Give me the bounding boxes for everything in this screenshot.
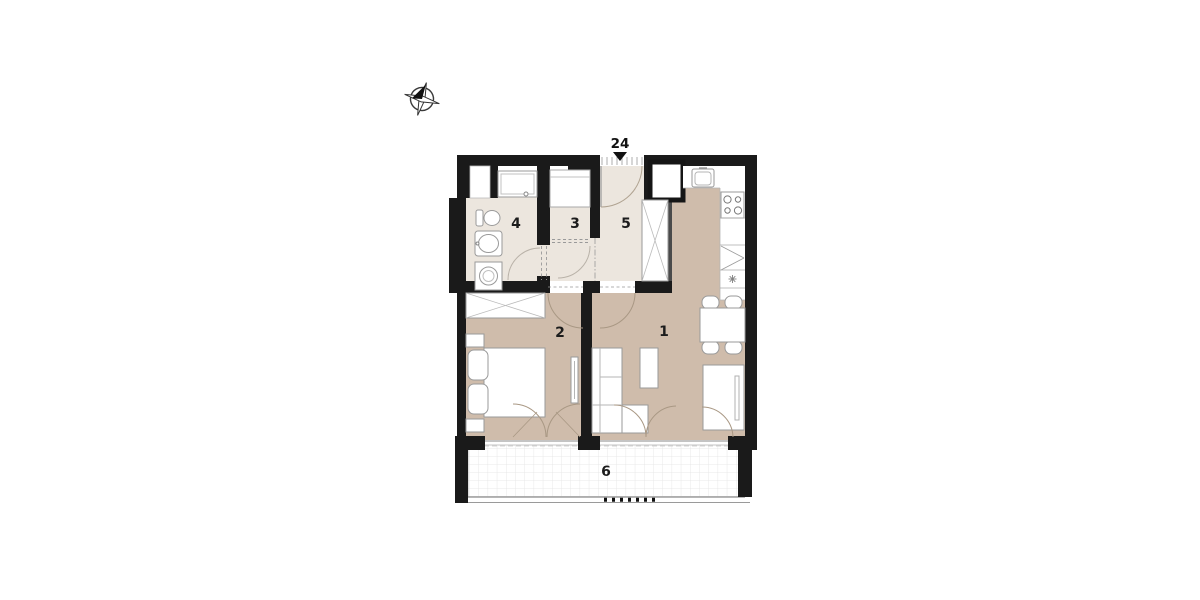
room-label-bedroom: 2 (555, 325, 565, 341)
chair (702, 296, 719, 309)
room-label-living: 1 (659, 324, 669, 340)
duct-shaft (650, 162, 683, 200)
floor-plan: 1 2 3 4 5 6 24 (0, 0, 1200, 600)
room-label-room3: 3 (570, 216, 580, 232)
room-label-bathroom: 4 (511, 216, 521, 232)
chair (725, 296, 742, 309)
room-label-hall: 5 (621, 216, 631, 232)
chair (725, 341, 742, 354)
kitchen-floor (672, 188, 722, 293)
sofa (592, 348, 622, 433)
bed (484, 348, 545, 417)
dining-table (700, 308, 745, 342)
entrance-marker: 24 (611, 136, 630, 161)
freezer-symbol (729, 275, 737, 283)
chair (702, 341, 719, 354)
unit-number: 24 (611, 136, 630, 152)
stove (721, 192, 744, 218)
compass-rose-icon (400, 78, 444, 120)
pillow (468, 350, 488, 380)
shower (550, 170, 590, 207)
bathtub (498, 171, 537, 197)
room3-fixtures (550, 170, 590, 207)
nightstand (466, 419, 484, 432)
hall-fixtures (642, 200, 668, 281)
floor-plan-page: 1 2 3 4 5 6 24 (0, 0, 1200, 600)
down-triangle-icon (613, 152, 627, 161)
nightstand (466, 334, 484, 347)
pillow (468, 384, 488, 414)
coffee-table (640, 348, 658, 388)
sofa-chaise (622, 405, 648, 433)
wall-niche (470, 166, 490, 198)
toilet (476, 210, 483, 226)
room-label-terrace: 6 (601, 464, 611, 480)
